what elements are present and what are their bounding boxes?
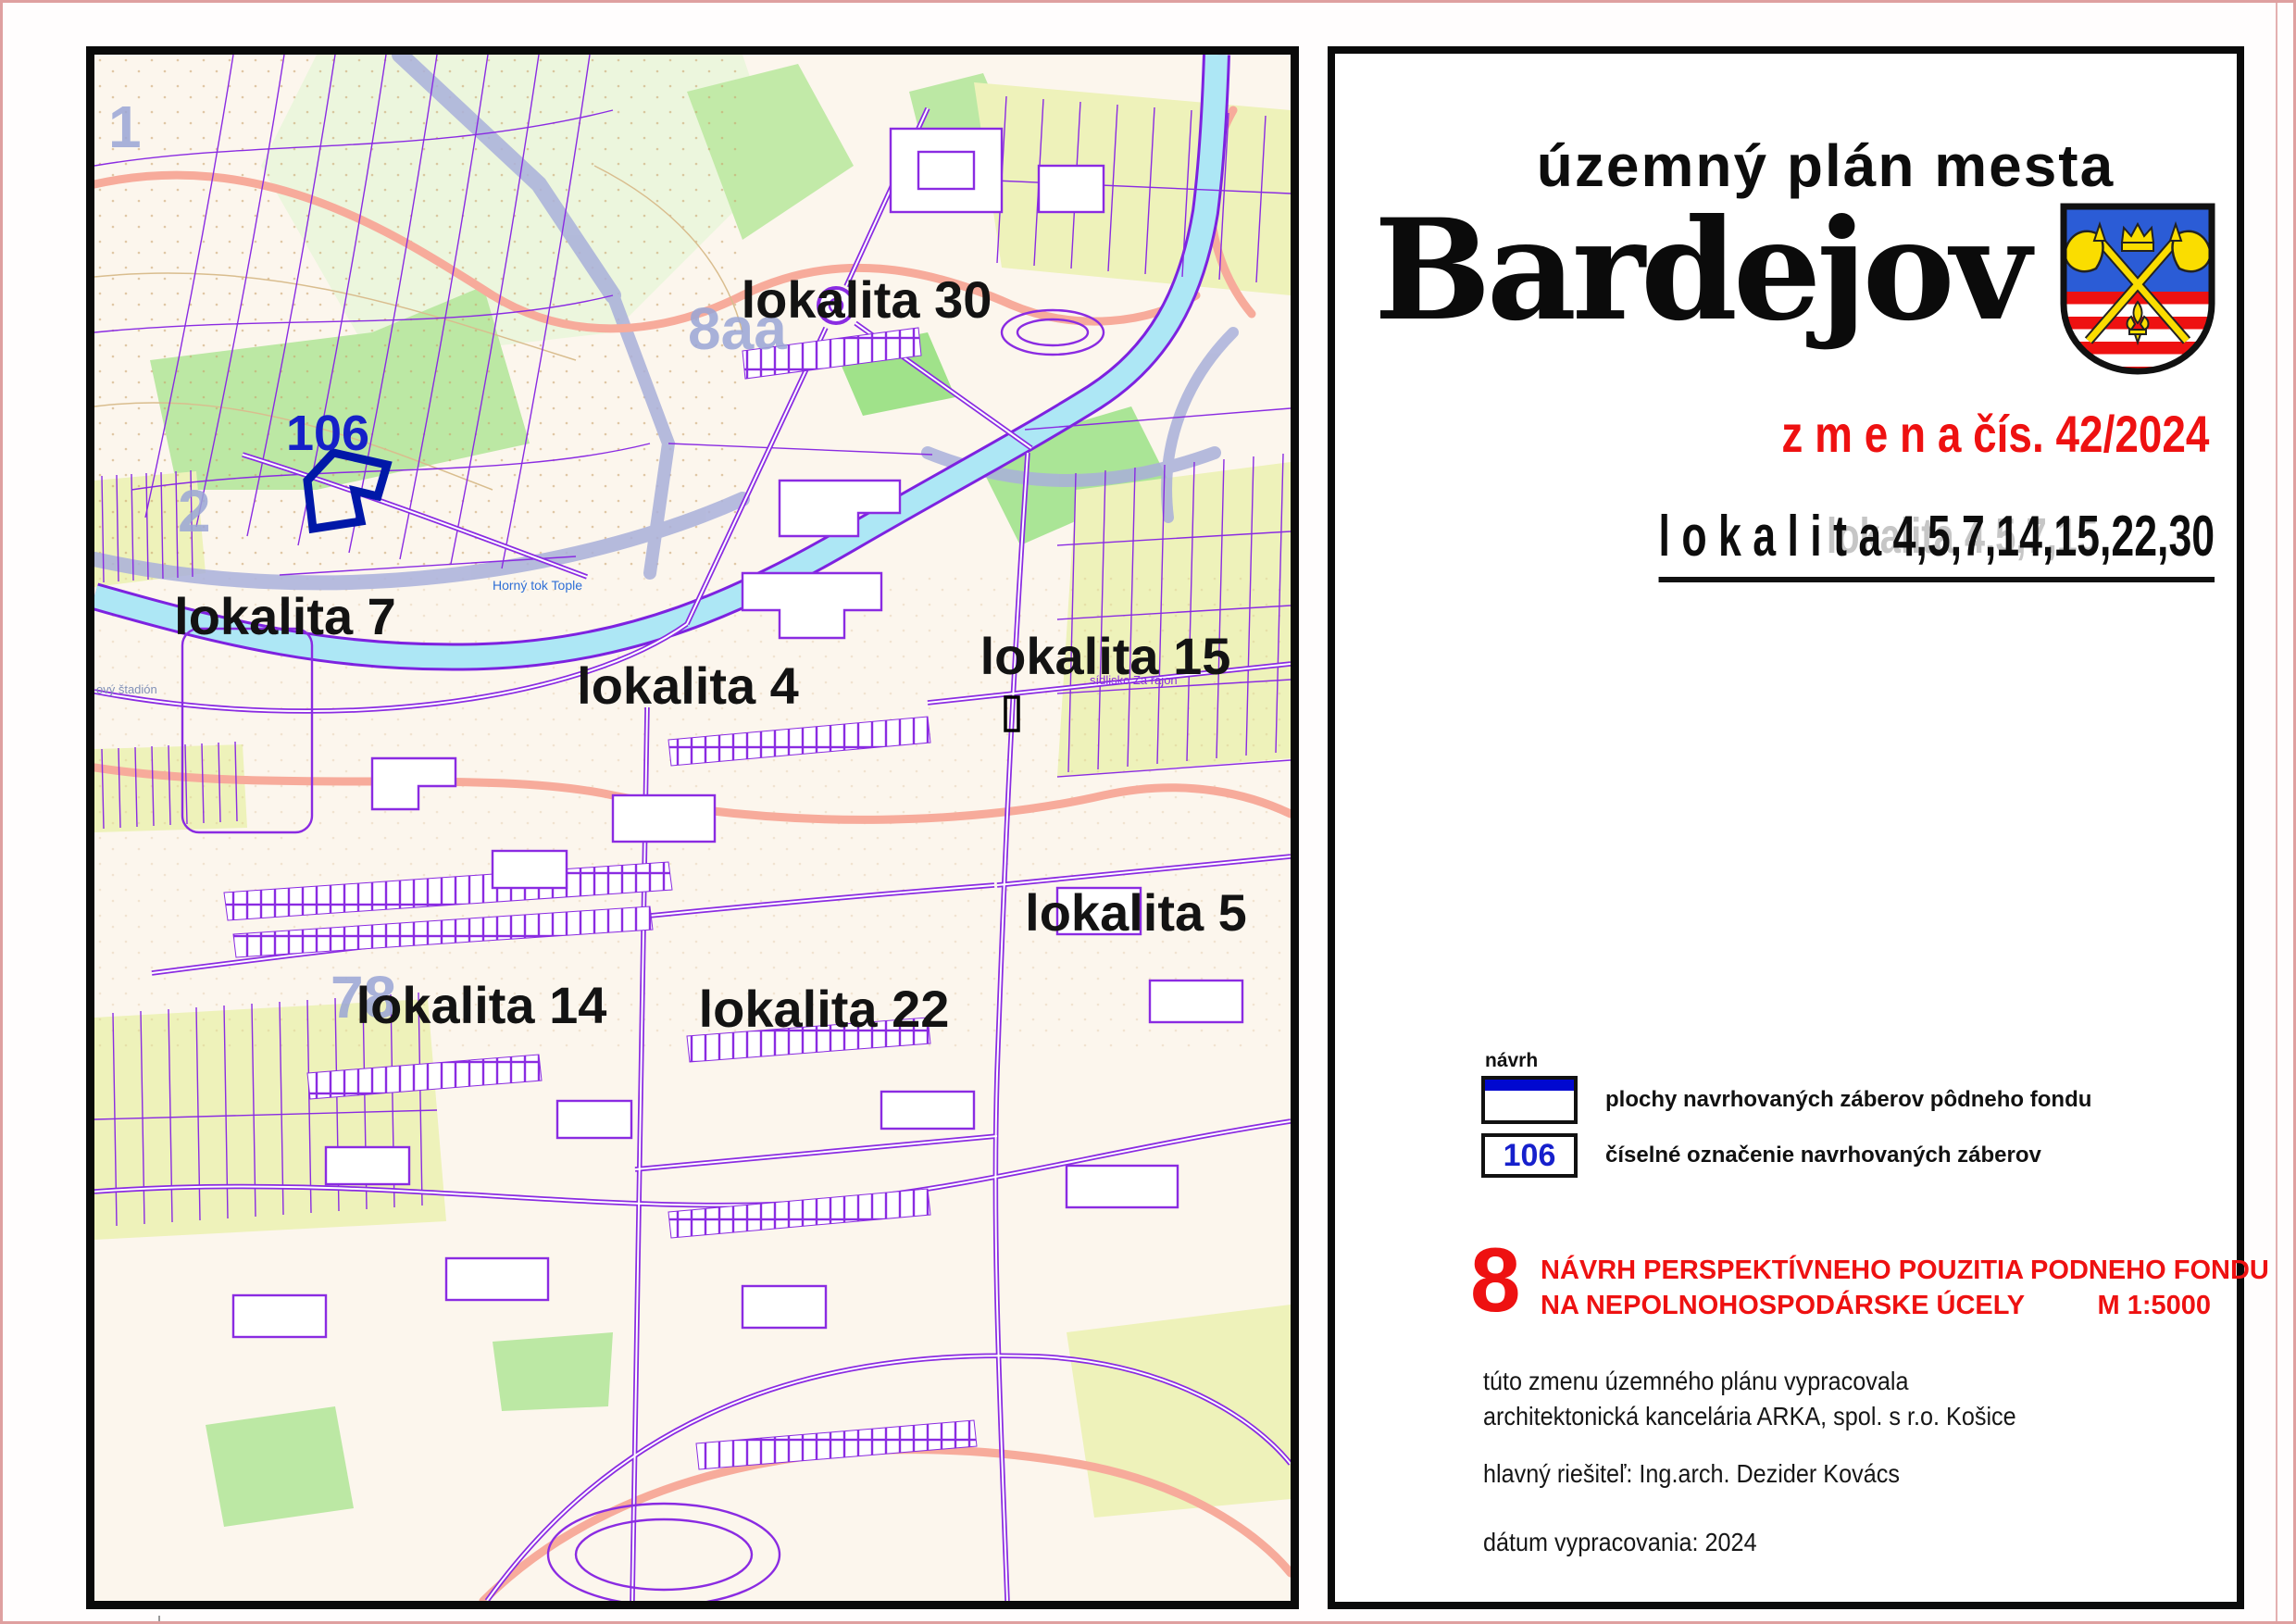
map-panel: 1 2 8aa 78 106 Horný tok Tople sídlisko … bbox=[86, 46, 1299, 1609]
title-block-panel: územný plán mesta Bardejov bbox=[1328, 46, 2244, 1609]
section-title-line1: NÁVRH PERSPEKTÍVNEHO POUZITIA PODNEHO FO… bbox=[1541, 1255, 2269, 1286]
section-title-line2: NA NEPOLNOHOSPODÁRSKE ÚCELY bbox=[1541, 1291, 2025, 1321]
label-lokalita-4: lokalita 4 bbox=[577, 656, 799, 715]
map-scale: M 1:5000 bbox=[2097, 1291, 2211, 1321]
label-lokalita-5: lokalita 5 bbox=[1025, 883, 1247, 942]
label-lokalita-15: lokalita 15 bbox=[980, 627, 1231, 685]
credit-line-1: túto zmenu územného plánu vypracovala bbox=[1483, 1367, 1908, 1396]
city-plan-map: 1 2 8aa 78 106 Horný tok Tople sídlisko … bbox=[94, 55, 1291, 1601]
label-lokalita-22: lokalita 22 bbox=[699, 980, 950, 1038]
credit-line-2: architektonická kancelária ARKA, spol. s… bbox=[1483, 1402, 2016, 1431]
credit-line-4: dátum vypracovania: 2024 bbox=[1483, 1528, 1757, 1557]
river-name-label: Horný tok Tople bbox=[493, 578, 582, 593]
sheet-number-2: 2 bbox=[178, 478, 211, 544]
stadium-label: ový štadión bbox=[96, 682, 157, 696]
section-number: 8 bbox=[1470, 1239, 1521, 1320]
legend-area-swatch bbox=[1481, 1076, 1578, 1124]
credit-line-3: hlavný riešiteľ: Ing.arch. Dezider Kovác… bbox=[1483, 1459, 1900, 1489]
label-lokalita-7: lokalita 7 bbox=[174, 587, 396, 645]
city-name: Bardejov bbox=[1374, 189, 2027, 352]
area-number-106: 106 bbox=[286, 406, 369, 461]
legend-number-swatch: 106 bbox=[1481, 1133, 1578, 1178]
legend-blue-bar bbox=[1485, 1080, 1574, 1091]
localities-line: l o k a l i t a 4,5,7,14,15,22,30 bbox=[1658, 504, 2215, 582]
change-number-line: z m e n a čís. 42/2024 bbox=[1781, 404, 2209, 464]
fold-mark bbox=[158, 1616, 160, 1624]
sheet-number-1: 1 bbox=[108, 94, 142, 160]
plan-sheet: 1 2 8aa 78 106 Horný tok Tople sídlisko … bbox=[0, 0, 2296, 1624]
legend-heading: návrh bbox=[1485, 1050, 1538, 1072]
label-lokalita-14: lokalita 14 bbox=[356, 976, 607, 1034]
bardejov-coat-of-arms bbox=[2057, 202, 2218, 376]
legend-number-label: číselné označenie navrhovaných záberov bbox=[1605, 1143, 2041, 1168]
label-lokalita-30: lokalita 30 bbox=[742, 270, 992, 329]
legend-area-label: plochy navrhovaných záberov pôdneho fond… bbox=[1605, 1087, 2091, 1113]
page-margin-line bbox=[2276, 3, 2277, 1621]
